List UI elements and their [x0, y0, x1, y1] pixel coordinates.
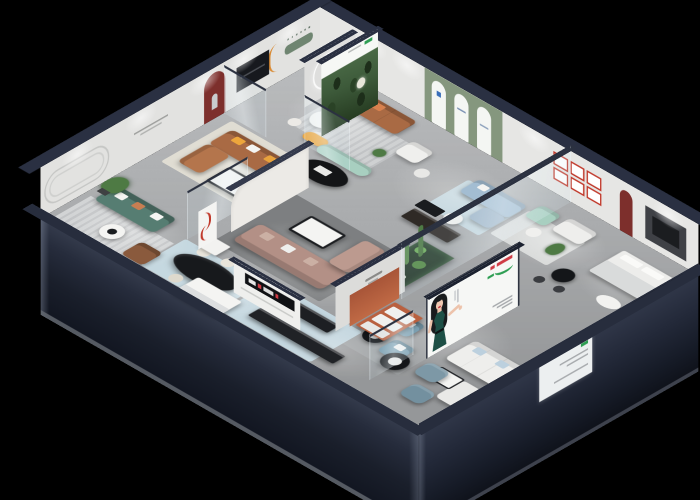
- showroom-floor: [41, 58, 699, 435]
- sign-glyph-red: [258, 283, 262, 289]
- wall-cap-back-left: [18, 0, 331, 174]
- white-arch-panel: [432, 78, 446, 130]
- steel-blue-ottoman: [412, 361, 452, 384]
- arch-caption-bar: [457, 107, 465, 114]
- woman-hand: [459, 305, 463, 311]
- white-arch-panel: [454, 91, 468, 143]
- orange-trim-accent: [268, 43, 277, 76]
- red-arch-niche: [620, 187, 633, 237]
- billboard-green-sub: [488, 273, 494, 279]
- vertical-caption-bar: [454, 290, 455, 301]
- side-table: [411, 167, 434, 180]
- steel-blue-ottoman: [398, 382, 438, 405]
- sign-glyph-red: [275, 293, 278, 299]
- sign-glyph-white: [249, 278, 256, 286]
- niche-sculpture-icon: [212, 92, 218, 110]
- vertical-caption-bar: [457, 289, 458, 303]
- sign-glyph-white: [263, 287, 273, 297]
- dark-chair: [551, 284, 568, 294]
- billboard-red-wordmark-dot: [490, 265, 494, 271]
- showroom-render: [0, 0, 700, 500]
- dark-chair: [531, 275, 548, 285]
- arch-caption-bar: [480, 123, 488, 130]
- black-round-dining-table: [546, 266, 580, 285]
- white-arch-panel: [477, 104, 491, 156]
- facade-corner-highlight: [41, 208, 49, 319]
- arch-blue-logo: [437, 91, 441, 98]
